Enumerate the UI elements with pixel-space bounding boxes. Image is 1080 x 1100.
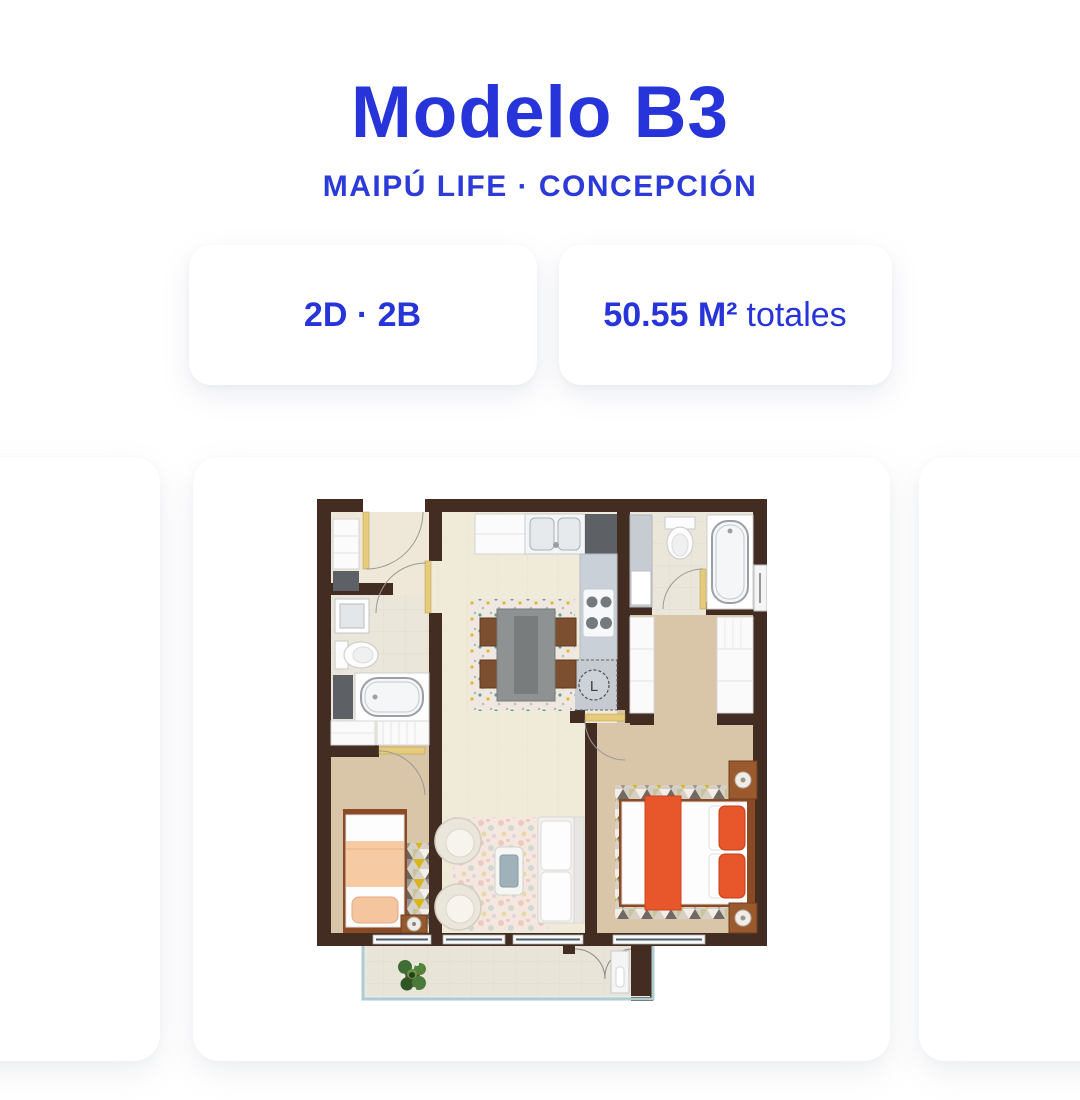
master-door-leaf — [585, 714, 625, 721]
carousel-card-current[interactable]: L — [193, 457, 890, 1061]
pillow — [719, 806, 745, 850]
stove — [583, 589, 614, 637]
washer-label: L — [589, 678, 597, 695]
bedroom-2-door-leaf — [379, 747, 425, 754]
carousel-card-previous[interactable] — [0, 457, 160, 1061]
bathroom-1-door-leaf — [425, 561, 431, 613]
area-value: 50.55 M² — [603, 296, 737, 335]
armchair — [435, 884, 481, 930]
floorplan-image: L — [317, 499, 767, 1007]
window — [613, 935, 705, 944]
area-badge: 50.55 M² totales — [559, 245, 892, 385]
rooms-badge: 2D · 2B — [189, 245, 537, 385]
page-subtitle: MAIPÚ LIFE · CONCEPCIÓN — [0, 169, 1080, 205]
floorplan-carousel: L — [0, 457, 1080, 1073]
hall-closets — [331, 721, 429, 745]
rooms-badge-label: 2D · 2B — [304, 296, 421, 335]
wardrobe — [630, 617, 654, 713]
living-room — [435, 817, 584, 931]
bathroom-2-door-leaf — [700, 569, 706, 609]
dining-area — [470, 599, 576, 711]
carousel-card-next[interactable] — [919, 457, 1080, 1061]
bed-runner — [645, 796, 681, 910]
entry-door-leaf — [363, 512, 369, 569]
area-suffix: totales — [747, 296, 847, 335]
window — [443, 935, 505, 944]
coffee-table — [495, 847, 523, 895]
page-header: Modelo B3 MAIPÚ LIFE · CONCEPCIÓN — [0, 0, 1080, 205]
sofa — [538, 817, 584, 923]
chair — [554, 618, 576, 646]
window — [373, 935, 431, 944]
pillow — [352, 897, 398, 923]
spec-badges: 2D · 2B 50.55 M² totales — [0, 245, 1080, 385]
page-title: Modelo B3 — [0, 76, 1080, 149]
windows — [373, 935, 705, 944]
window — [513, 935, 583, 944]
sink — [631, 571, 651, 605]
wardrobe — [717, 617, 753, 713]
chair — [554, 660, 576, 688]
armchair — [435, 818, 481, 864]
pillow — [719, 854, 745, 898]
headboard — [747, 799, 755, 907]
